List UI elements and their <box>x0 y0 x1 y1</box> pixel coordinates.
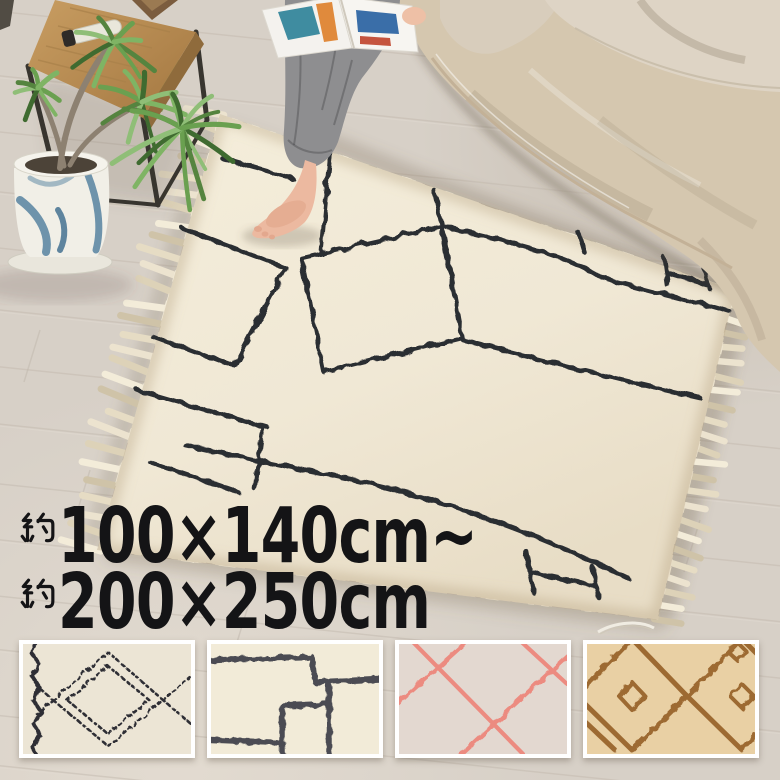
kanji-approx-icon: 約 <box>18 577 56 615</box>
size-overlay: 約100×140cm~ 約200×250cm <box>18 498 624 630</box>
swatch-beige-brown-diamond[interactable] <box>583 640 759 758</box>
variant-swatches <box>0 640 780 758</box>
size-line-1: 約100×140cm~ <box>18 498 624 564</box>
size-range-end: 200×250cm <box>58 564 430 641</box>
swatch-pattern-diamond-brown <box>587 644 755 754</box>
swatch-ivory-black-diamond[interactable] <box>19 640 195 758</box>
product-image: LY <box>0 0 780 780</box>
swatch-pattern-grid <box>211 644 379 754</box>
swatch-ivory-black-grid[interactable] <box>207 640 383 758</box>
swatch-pattern-diamond-dotted <box>23 644 191 754</box>
swatch-pattern-lattice <box>399 644 567 754</box>
size-line-2: 約200×250cm <box>18 564 624 630</box>
swatch-pink-coral-lattice[interactable] <box>395 640 571 758</box>
hand <box>402 7 426 25</box>
magazine <box>262 0 426 58</box>
kanji-approx-icon: 約 <box>18 511 56 549</box>
